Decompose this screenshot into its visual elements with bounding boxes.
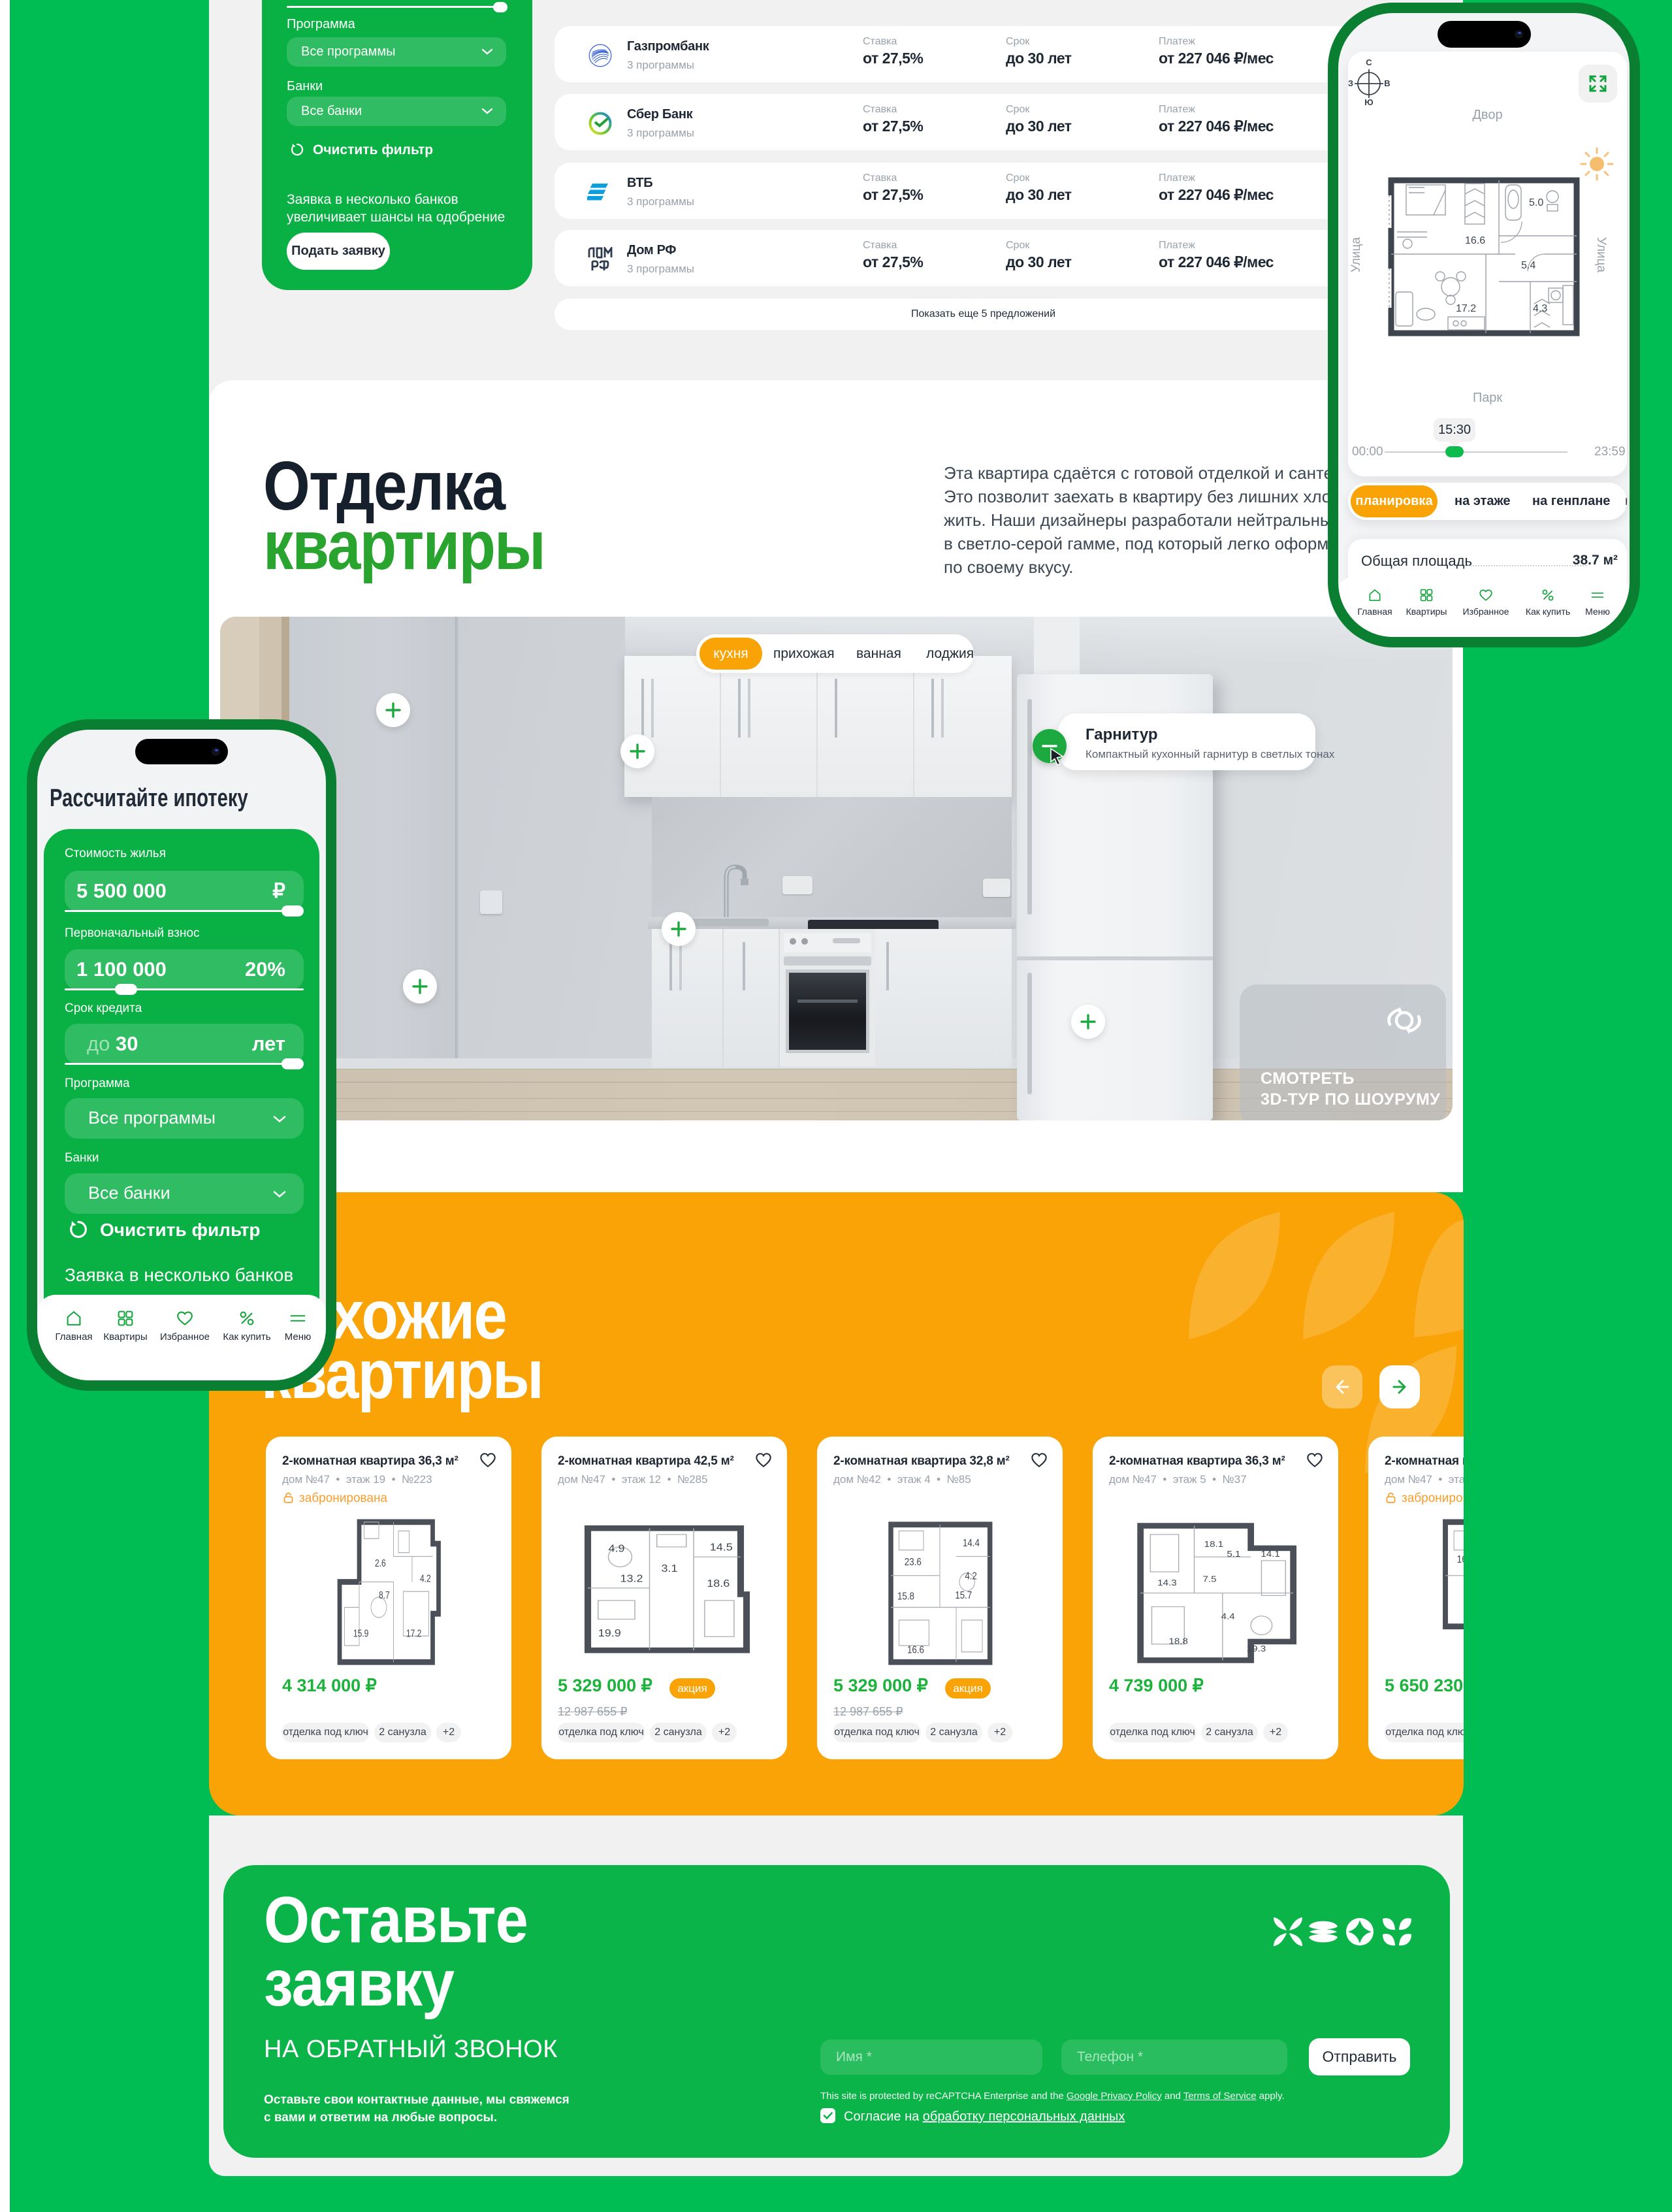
svg-text:18.1: 18.1 xyxy=(1204,1540,1224,1550)
svg-text:14.1: 14.1 xyxy=(1261,1550,1280,1559)
svg-text:5.1: 5.1 xyxy=(1227,1550,1240,1559)
svg-text:7.5: 7.5 xyxy=(1203,1574,1217,1584)
svg-text:13.2: 13.2 xyxy=(620,1573,643,1584)
svg-text:2.6: 2.6 xyxy=(375,1557,386,1569)
svg-text:4.4: 4.4 xyxy=(1221,1612,1235,1621)
svg-text:17.2: 17.2 xyxy=(406,1627,422,1639)
svg-text:4.2: 4.2 xyxy=(420,1572,431,1584)
svg-text:18.8: 18.8 xyxy=(1169,1636,1189,1646)
svg-text:4.2: 4.2 xyxy=(965,1571,977,1582)
svg-text:4.3: 4.3 xyxy=(1533,303,1547,314)
svg-text:8.7: 8.7 xyxy=(379,1589,390,1601)
svg-text:3.1: 3.1 xyxy=(662,1563,678,1574)
svg-text:15.7: 15.7 xyxy=(955,1590,972,1601)
svg-text:19.3: 19.3 xyxy=(1247,1644,1266,1654)
svg-text:14.3: 14.3 xyxy=(1157,1578,1177,1588)
svg-text:16.4: 16.4 xyxy=(1457,1555,1464,1566)
svg-text:23.6: 23.6 xyxy=(905,1557,922,1568)
svg-text:С: С xyxy=(1366,57,1372,67)
svg-text:15.8: 15.8 xyxy=(897,1591,914,1602)
svg-text:4.9: 4.9 xyxy=(609,1543,625,1554)
svg-text:16.6: 16.6 xyxy=(907,1645,924,1656)
svg-text:19.9: 19.9 xyxy=(598,1628,621,1639)
svg-text:17.2: 17.2 xyxy=(1456,303,1476,314)
svg-text:Ю: Ю xyxy=(1364,97,1373,106)
svg-text:14.4: 14.4 xyxy=(963,1538,980,1549)
svg-text:З: З xyxy=(1348,78,1353,88)
svg-text:15.9: 15.9 xyxy=(353,1627,369,1639)
svg-text:5.0: 5.0 xyxy=(1529,197,1543,208)
svg-text:В: В xyxy=(1384,78,1390,88)
svg-text:18.6: 18.6 xyxy=(707,1578,730,1589)
svg-text:14.5: 14.5 xyxy=(710,1542,733,1553)
svg-text:16.6: 16.6 xyxy=(1465,235,1485,246)
svg-text:5.4: 5.4 xyxy=(1521,260,1535,271)
